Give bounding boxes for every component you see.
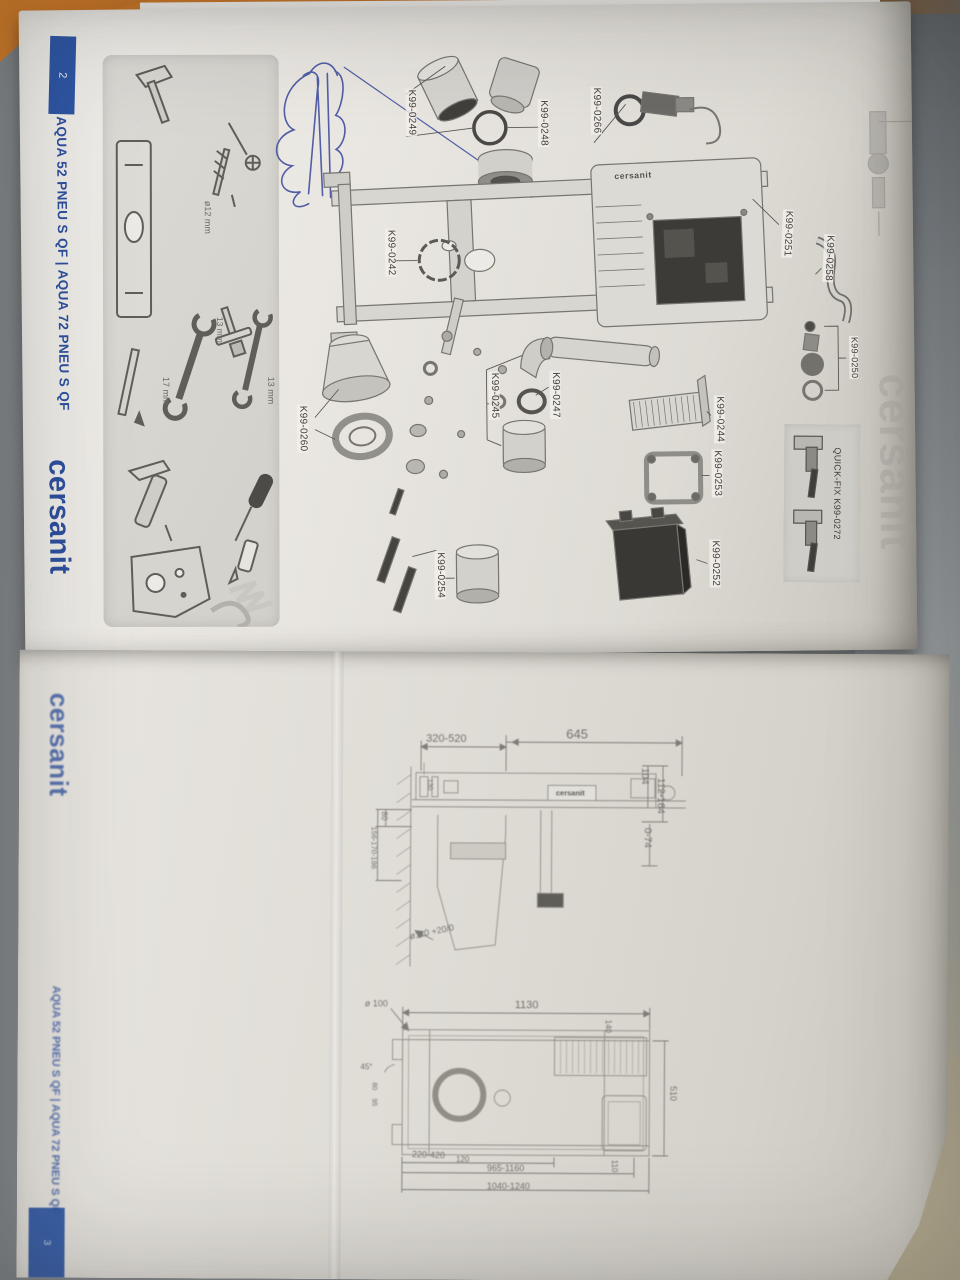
screwdriver-icon <box>235 472 275 541</box>
dim-label: 220-420 <box>412 1149 445 1160</box>
brand-logo: cersanit <box>43 693 75 853</box>
dim-label: 130 <box>426 779 433 791</box>
dimension-lines <box>384 1006 669 1193</box>
pencil-icon <box>118 349 143 425</box>
brand-logo: cersanit <box>41 459 76 619</box>
rack-part <box>627 376 710 435</box>
caulking-gun-icon <box>129 461 171 541</box>
socket-size-label: 13 mm <box>215 317 225 343</box>
quick-fix-brackets-artwork <box>785 424 832 582</box>
pipe-gasket-part <box>519 390 545 412</box>
frame-bracket-part <box>646 454 700 503</box>
page-number: 2 <box>56 72 68 78</box>
flush-elbow-part <box>414 51 542 193</box>
part-label: K99-0247 <box>549 371 560 419</box>
leader-lines <box>311 62 824 579</box>
dim-label: 645 <box>566 726 588 741</box>
hardware-fasteners <box>388 331 508 515</box>
wall-bracket-icon <box>794 436 822 497</box>
part-label: K99-0254 <box>434 551 445 599</box>
side-view-drawing: 320-520 645 104 112-164 0-74 130 80 156-… <box>355 714 686 986</box>
part-label: K99-0260 <box>297 405 308 453</box>
part-label: K99-0251 <box>781 209 793 257</box>
part-label: K99-0249 <box>405 89 416 137</box>
cone-gasket-part <box>315 330 400 461</box>
page-number-tab: 3 <box>28 1208 64 1278</box>
dim-label: 95 <box>370 1098 377 1106</box>
side-view-artwork <box>355 714 686 986</box>
spirit-level-icon <box>117 141 151 317</box>
dim-label: 120 <box>456 1155 469 1164</box>
part-label: K99-0244 <box>714 395 725 443</box>
page-fold-crease <box>328 651 343 1279</box>
dimension-lines <box>375 734 682 941</box>
dim-label: 1130 <box>515 999 539 1011</box>
front-view-drawing: ø 100 1130 140 510 45° 80 95 220-420 120… <box>354 994 685 1211</box>
brand-watermark: cersanit <box>868 373 917 614</box>
mounting-template-icon <box>131 547 209 617</box>
part-label: K99-0252 <box>709 539 720 587</box>
toilet-bowl-profile <box>437 810 564 951</box>
hose-icon <box>212 603 249 627</box>
dim-label: 80 <box>380 811 389 820</box>
part-label: K99-0258 <box>822 234 834 282</box>
pipe-sleeve-part <box>503 420 546 472</box>
hammer-icon <box>137 66 172 123</box>
frame-front <box>392 1030 650 1156</box>
dim-label: 112-164 <box>655 778 666 814</box>
part-label: K99-0245 <box>488 372 499 420</box>
fill-valve-part <box>616 91 721 144</box>
dim-label: 80 <box>370 1082 377 1090</box>
tank-brand-logo: cersanit <box>614 169 652 181</box>
utility-knife-icon <box>229 540 258 583</box>
dim-label: ø 100 <box>365 998 388 1008</box>
page-number-tab: 2 <box>48 36 76 115</box>
dim-label: 965-1160 <box>487 1163 524 1173</box>
dim-label: 140 <box>604 1020 613 1033</box>
wall-bracket-icon <box>793 510 821 571</box>
dim-label: 156-170-186 <box>370 826 379 869</box>
drill-diameter-label: ø12 mm <box>203 201 213 234</box>
dim-label: 0-74 <box>642 828 653 848</box>
quick-fix-label: QUICK-FIX K99-0272 <box>832 446 842 541</box>
angle-connector-part <box>801 321 847 399</box>
quick-fix-box: QUICK-FIX K99-0272 <box>783 424 860 583</box>
dim-label: 510 <box>668 1086 678 1101</box>
part-label: K99-0250 <box>849 336 859 380</box>
dim-label: 104 <box>639 768 650 785</box>
part-label: K99-0253 <box>711 449 722 497</box>
manual-page-2: 2 AQUA 52 PNEU S QF | AQUA 72 PNEU S QF … <box>19 1 918 658</box>
part-label: K99-0242 <box>385 229 396 277</box>
flush-pipe-part <box>520 334 660 389</box>
page-title: AQUA 52 PNEU S QF | AQUA 72 PNEU S QF <box>54 116 72 442</box>
part-label: K99-0266 <box>590 87 601 135</box>
drill-bit-icon <box>213 149 235 207</box>
dim-label: 45° <box>360 1062 372 1071</box>
photo-of-installation-manual: 2 AQUA 52 PNEU S QF | AQUA 72 PNEU S QF … <box>0 0 960 1280</box>
front-view-artwork <box>354 994 685 1211</box>
dim-label: 320-520 <box>426 733 466 745</box>
manual-page-3: cersanit AQUA 52 PNEU S QF | AQUA 72 PNE… <box>16 650 949 1280</box>
open-end-wrench-17-icon <box>164 310 216 422</box>
o-ring-part <box>474 112 506 144</box>
frame-brand-label: cersanit <box>556 788 585 797</box>
access-box-part <box>605 505 691 600</box>
wrench-13-label: 13 mm <box>266 377 276 405</box>
dim-label: 110 <box>610 1160 619 1173</box>
dim-label: 1040-1240 <box>487 1181 530 1191</box>
part-label: K99-0248 <box>538 99 549 147</box>
inlet-valve-part <box>868 111 918 236</box>
wrench-17-label: 17 mm <box>161 377 171 405</box>
page-number: 3 <box>41 1240 52 1246</box>
